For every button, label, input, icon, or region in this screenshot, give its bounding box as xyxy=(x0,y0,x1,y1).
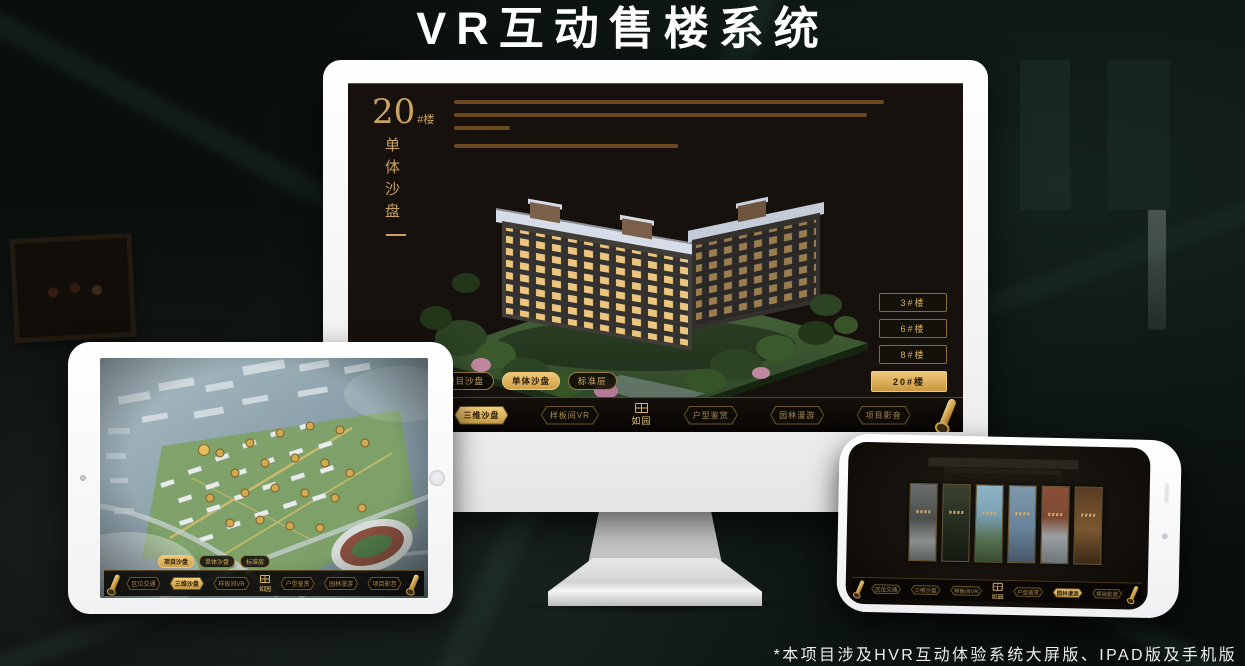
tablet-brand-logo-text: 如园 xyxy=(259,584,271,593)
phone-screen: 区位交通 三维沙盘 样板间VR 如园 户型鉴赏 园林漫游 项目影音 xyxy=(845,442,1150,610)
tablet-scroll-left-icon[interactable] xyxy=(108,573,120,593)
tablet-subtabs: 项目沙盘 单体沙盘 标准层 xyxy=(158,555,270,568)
subtab-single-sandtable[interactable]: 单体沙盘 xyxy=(502,372,560,390)
phone-menu-bar: 区位交通 三维沙盘 样板间VR 如园 户型鉴赏 园林漫游 项目影音 xyxy=(851,577,1141,605)
phone-menu-item-location[interactable]: 区位交通 xyxy=(871,584,901,595)
subtab-standard-floor[interactable]: 标准层 xyxy=(568,372,617,390)
background-city-blocks xyxy=(995,60,1245,210)
scene-panel-interior[interactable] xyxy=(1073,486,1103,565)
phone-menu-item-unit-plans[interactable]: 户型鉴赏 xyxy=(1013,587,1043,598)
phone-scroll-left-icon[interactable] xyxy=(854,580,864,597)
background-tower xyxy=(1148,210,1166,330)
tablet-brand-seal-icon xyxy=(260,575,270,583)
phone-scroll-right-icon[interactable] xyxy=(1128,586,1138,603)
floor-button-20[interactable]: 20#楼 xyxy=(871,371,947,392)
phone-menu-item-3d-sandtable[interactable]: 三维沙盘 xyxy=(910,584,940,595)
tablet-camera-icon xyxy=(80,475,86,481)
menu-item-unit-plans[interactable]: 户型鉴赏 xyxy=(684,406,738,425)
page-title: VR互动售楼系统 xyxy=(0,0,1245,58)
tablet-scroll-right-icon[interactable] xyxy=(407,573,419,593)
floor-button-3[interactable]: 3#楼 xyxy=(879,293,947,312)
heading-underline xyxy=(386,234,406,236)
phone-brand-logo-text: 如园 xyxy=(991,591,1003,600)
monitor-stand-neck xyxy=(588,506,722,564)
tablet-menu-item-3d-sandtable[interactable]: 三维沙盘 xyxy=(170,577,204,590)
footnote-text: *本项目涉及HVR互动体验系统大屏版、IPAD版及手机版 xyxy=(774,641,1237,665)
phone-menu-item-project-media[interactable]: 项目影音 xyxy=(1092,588,1122,599)
menu-item-project-media[interactable]: 项目影音 xyxy=(857,406,911,425)
phone-menu-item-showroom-vr[interactable]: 样板间VR xyxy=(950,585,982,596)
phone-camera-icon xyxy=(1162,533,1168,539)
building-number-suffix: #楼 xyxy=(417,114,434,126)
tablet-device: 项目沙盘 单体沙盘 标准层 区位交通 三维沙盘 样板间VR 如园 户型鉴赏 园林… xyxy=(68,342,453,614)
phone-brand-logo: 如园 xyxy=(991,582,1003,600)
scene-panel-landscape[interactable] xyxy=(974,484,1004,563)
tablet-menu-item-project-media[interactable]: 项目影音 xyxy=(367,577,401,590)
menu-item-showroom-vr[interactable]: 样板间VR xyxy=(541,406,599,425)
tablet-menu-item-location[interactable]: 区位交通 xyxy=(126,577,160,590)
tablet-subtab-project-sandtable[interactable]: 项目沙盘 xyxy=(158,555,194,568)
background-plaque xyxy=(9,233,136,343)
scroll-handle-icon[interactable] xyxy=(937,398,957,432)
scene-panel-building[interactable] xyxy=(1007,485,1037,564)
menu-item-3d-sandtable[interactable]: 三维沙盘 xyxy=(454,406,508,425)
phone-device: 区位交通 三维沙盘 样板间VR 如园 户型鉴赏 园林漫游 项目影音 xyxy=(836,433,1182,618)
scene-panel-gallery xyxy=(908,483,1103,565)
tablet-menu-item-garden-tour[interactable]: 园林漫游 xyxy=(324,577,358,590)
tablet-menu-bar: 区位交通 三维沙盘 样板间VR 如园 户型鉴赏 园林漫游 项目影音 xyxy=(104,570,424,596)
brand-logo-text: 如园 xyxy=(631,414,651,427)
floor-button-8[interactable]: 8#楼 xyxy=(879,345,947,364)
phone-menu-item-garden-tour[interactable]: 园林漫游 xyxy=(1053,587,1083,598)
scene-panel-autumn[interactable] xyxy=(1040,486,1070,565)
tablet-brand-logo: 如园 xyxy=(259,575,271,593)
menu-item-garden-tour[interactable]: 园林漫游 xyxy=(770,406,824,425)
tablet-home-button[interactable] xyxy=(429,470,445,486)
brand-seal-icon xyxy=(635,403,648,413)
tablet-subtab-standard-floor[interactable]: 标准层 xyxy=(240,555,270,568)
floor-button-6[interactable]: 6#楼 xyxy=(879,319,947,338)
scene-panel-garden[interactable] xyxy=(941,484,971,563)
building-number: 20 xyxy=(372,92,415,132)
tablet-subtab-single-sandtable[interactable]: 单体沙盘 xyxy=(199,555,235,568)
scene-panel-courtyard[interactable] xyxy=(908,483,938,562)
phone-brand-seal-icon xyxy=(993,582,1003,590)
monitor-subtabs: 项目沙盘 单体沙盘 标准层 xyxy=(436,372,617,390)
tablet-menu-item-showroom-vr[interactable]: 样板间VR xyxy=(213,577,249,590)
brand-logo: 如园 xyxy=(631,403,651,427)
tablet-menu-item-unit-plans[interactable]: 户型鉴赏 xyxy=(281,577,315,590)
phone-speaker-icon xyxy=(1165,483,1169,503)
building-subtitle: 单体沙盘 xyxy=(381,137,402,225)
floor-button-group: 3#楼 6#楼 8#楼 20#楼 xyxy=(871,293,947,392)
tablet-screen: 项目沙盘 单体沙盘 标准层 区位交通 三维沙盘 样板间VR 如园 户型鉴赏 园林… xyxy=(100,358,428,598)
